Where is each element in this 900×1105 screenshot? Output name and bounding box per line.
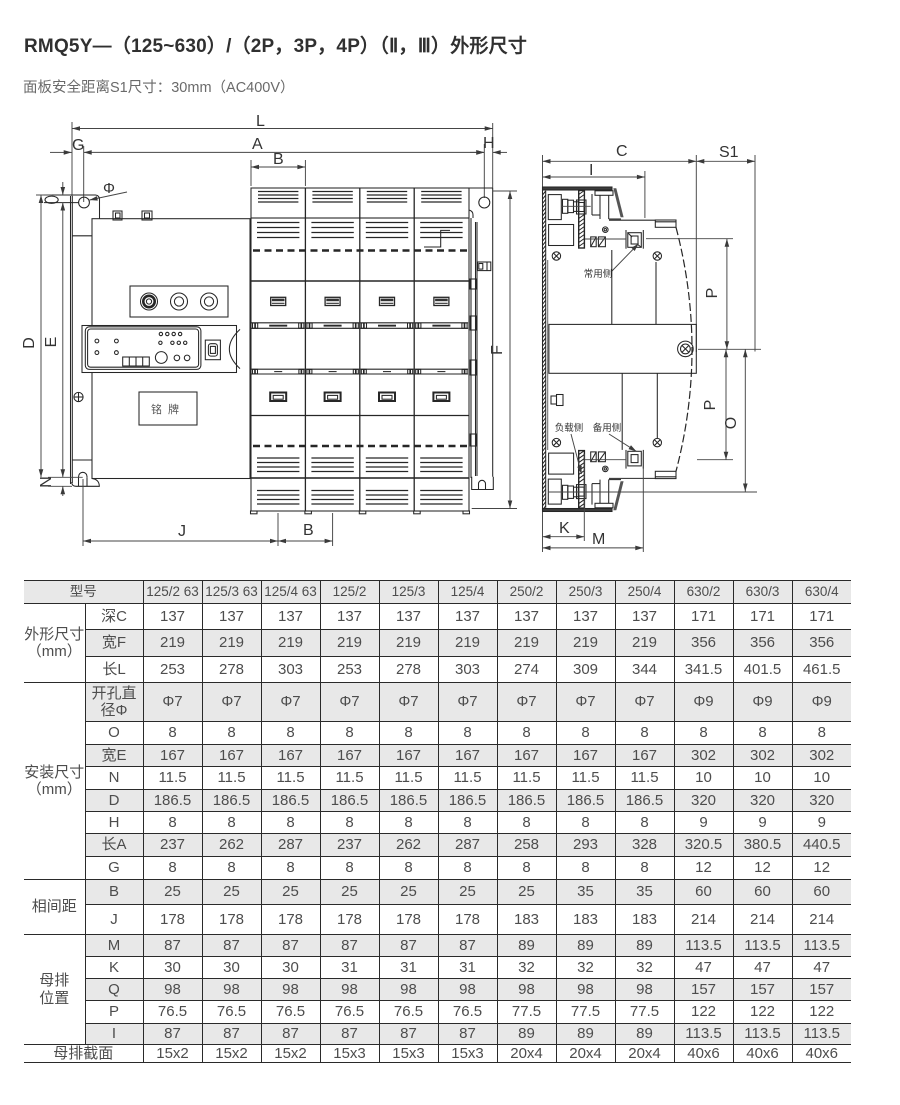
svg-text:备用侧: 备用侧	[593, 422, 622, 434]
svg-text:E: E	[43, 337, 60, 348]
svg-text:负载侧: 负载侧	[555, 422, 584, 434]
svg-text:S1: S1	[719, 144, 739, 161]
svg-text:D: D	[21, 337, 38, 349]
svg-text:P: P	[702, 400, 719, 411]
svg-text:A: A	[252, 136, 263, 153]
svg-text:O: O	[723, 417, 740, 429]
svg-text:B: B	[303, 522, 314, 539]
svg-text:铭牌: 铭牌	[151, 402, 185, 416]
svg-text:常用侧: 常用侧	[584, 268, 613, 280]
svg-text:B: B	[273, 151, 284, 168]
svg-text:P: P	[704, 288, 721, 299]
svg-text:F: F	[489, 345, 506, 355]
svg-text:I: I	[589, 162, 593, 179]
svg-text:M: M	[592, 531, 605, 548]
svg-text:K: K	[559, 520, 570, 537]
svg-text:L: L	[256, 113, 265, 130]
svg-text:J: J	[178, 523, 186, 540]
svg-text:G: G	[72, 137, 84, 154]
svg-text:H: H	[483, 135, 495, 152]
svg-text:C: C	[616, 143, 628, 160]
svg-text:Φ: Φ	[103, 180, 115, 197]
